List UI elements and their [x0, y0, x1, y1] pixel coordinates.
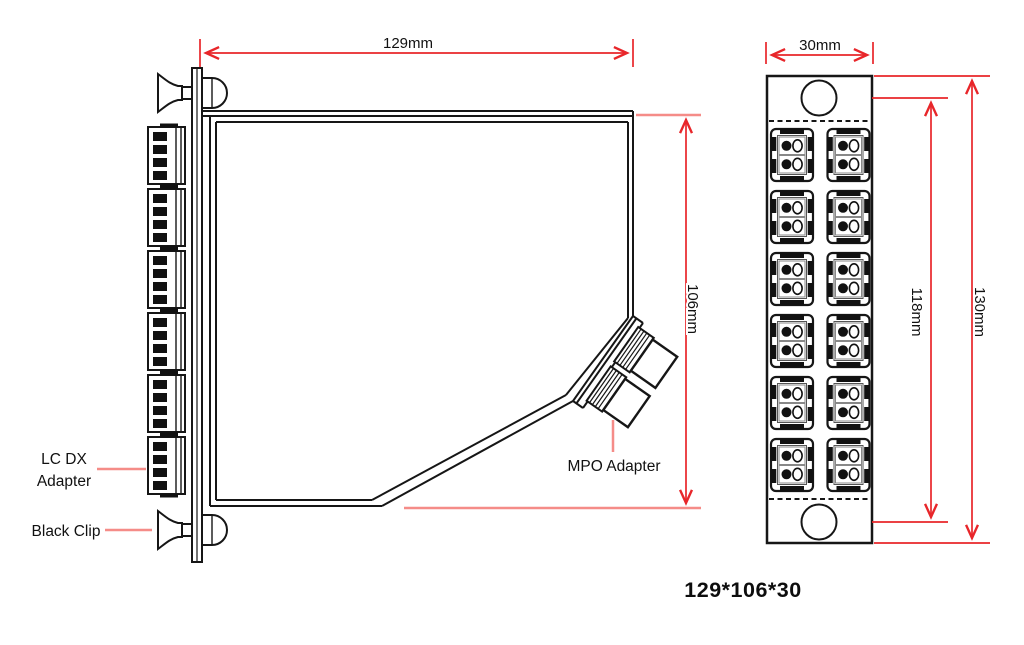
lc-dx-adapter	[148, 434, 185, 498]
lc-duplex-front-adapter	[827, 439, 869, 492]
label-black-clip: Black Clip	[32, 523, 101, 540]
lc-dx-adapter	[148, 248, 185, 312]
dim-129mm: 129mm	[200, 35, 633, 67]
dim-129mm-label: 129mm	[383, 35, 433, 52]
lc-duplex-front-adapter	[771, 439, 813, 492]
lc-dx-adapter	[148, 124, 185, 188]
front-view: 30mm 118mm 130mm	[766, 37, 990, 543]
lc-duplex-front-adapter	[771, 191, 813, 244]
dim-30mm-label: 30mm	[799, 37, 841, 54]
lc-duplex-front-adapter	[771, 377, 813, 430]
dim-106mm-label: 106mm	[684, 284, 701, 334]
lc-dx-adapter	[148, 186, 185, 250]
lc-dx-adapter-stack	[148, 124, 185, 498]
cassette-body	[202, 111, 643, 506]
lc-duplex-front-adapter	[827, 253, 869, 306]
lc-duplex-front-adapter	[771, 315, 813, 368]
mounting-hole-bottom	[802, 505, 837, 540]
dim-118mm: 118mm	[872, 98, 948, 522]
lc-duplex-front-adapter	[827, 129, 869, 182]
label-lc-dx-adapter-line1: LC DX	[41, 451, 87, 468]
lc-duplex-front-adapter	[827, 377, 869, 430]
side-view: 129mm 106mm LC DX Adapter Black Clip MPO…	[32, 35, 701, 562]
lc-duplex-front-adapter	[771, 253, 813, 306]
label-mpo-adapter: MPO Adapter	[567, 458, 660, 475]
lc-duplex-front-adapter	[771, 129, 813, 182]
dim-30mm: 30mm	[766, 37, 873, 64]
label-lc-dx-adapter-line2: Adapter	[37, 473, 91, 490]
lc-duplex-front-adapter	[827, 315, 869, 368]
technical-drawing-canvas: 129mm 106mm LC DX Adapter Black Clip MPO…	[0, 0, 1024, 645]
overall-size-text: 129*106*30	[684, 578, 801, 602]
mounting-hole-top	[802, 81, 837, 116]
lc-duplex-front-adapter	[827, 191, 869, 244]
cassette-drawing: 129mm 106mm LC DX Adapter Black Clip MPO…	[0, 0, 1024, 645]
lc-dx-adapter	[148, 310, 185, 374]
lc-dx-adapter	[148, 372, 185, 436]
dim-106mm: 106mm	[404, 115, 701, 508]
dim-118mm-label: 118mm	[908, 288, 925, 337]
mpo-adapter-group	[587, 327, 679, 429]
dim-130mm: 130mm	[874, 76, 990, 543]
front-panel-plate	[192, 68, 202, 562]
dim-130mm-label: 130mm	[971, 287, 988, 337]
